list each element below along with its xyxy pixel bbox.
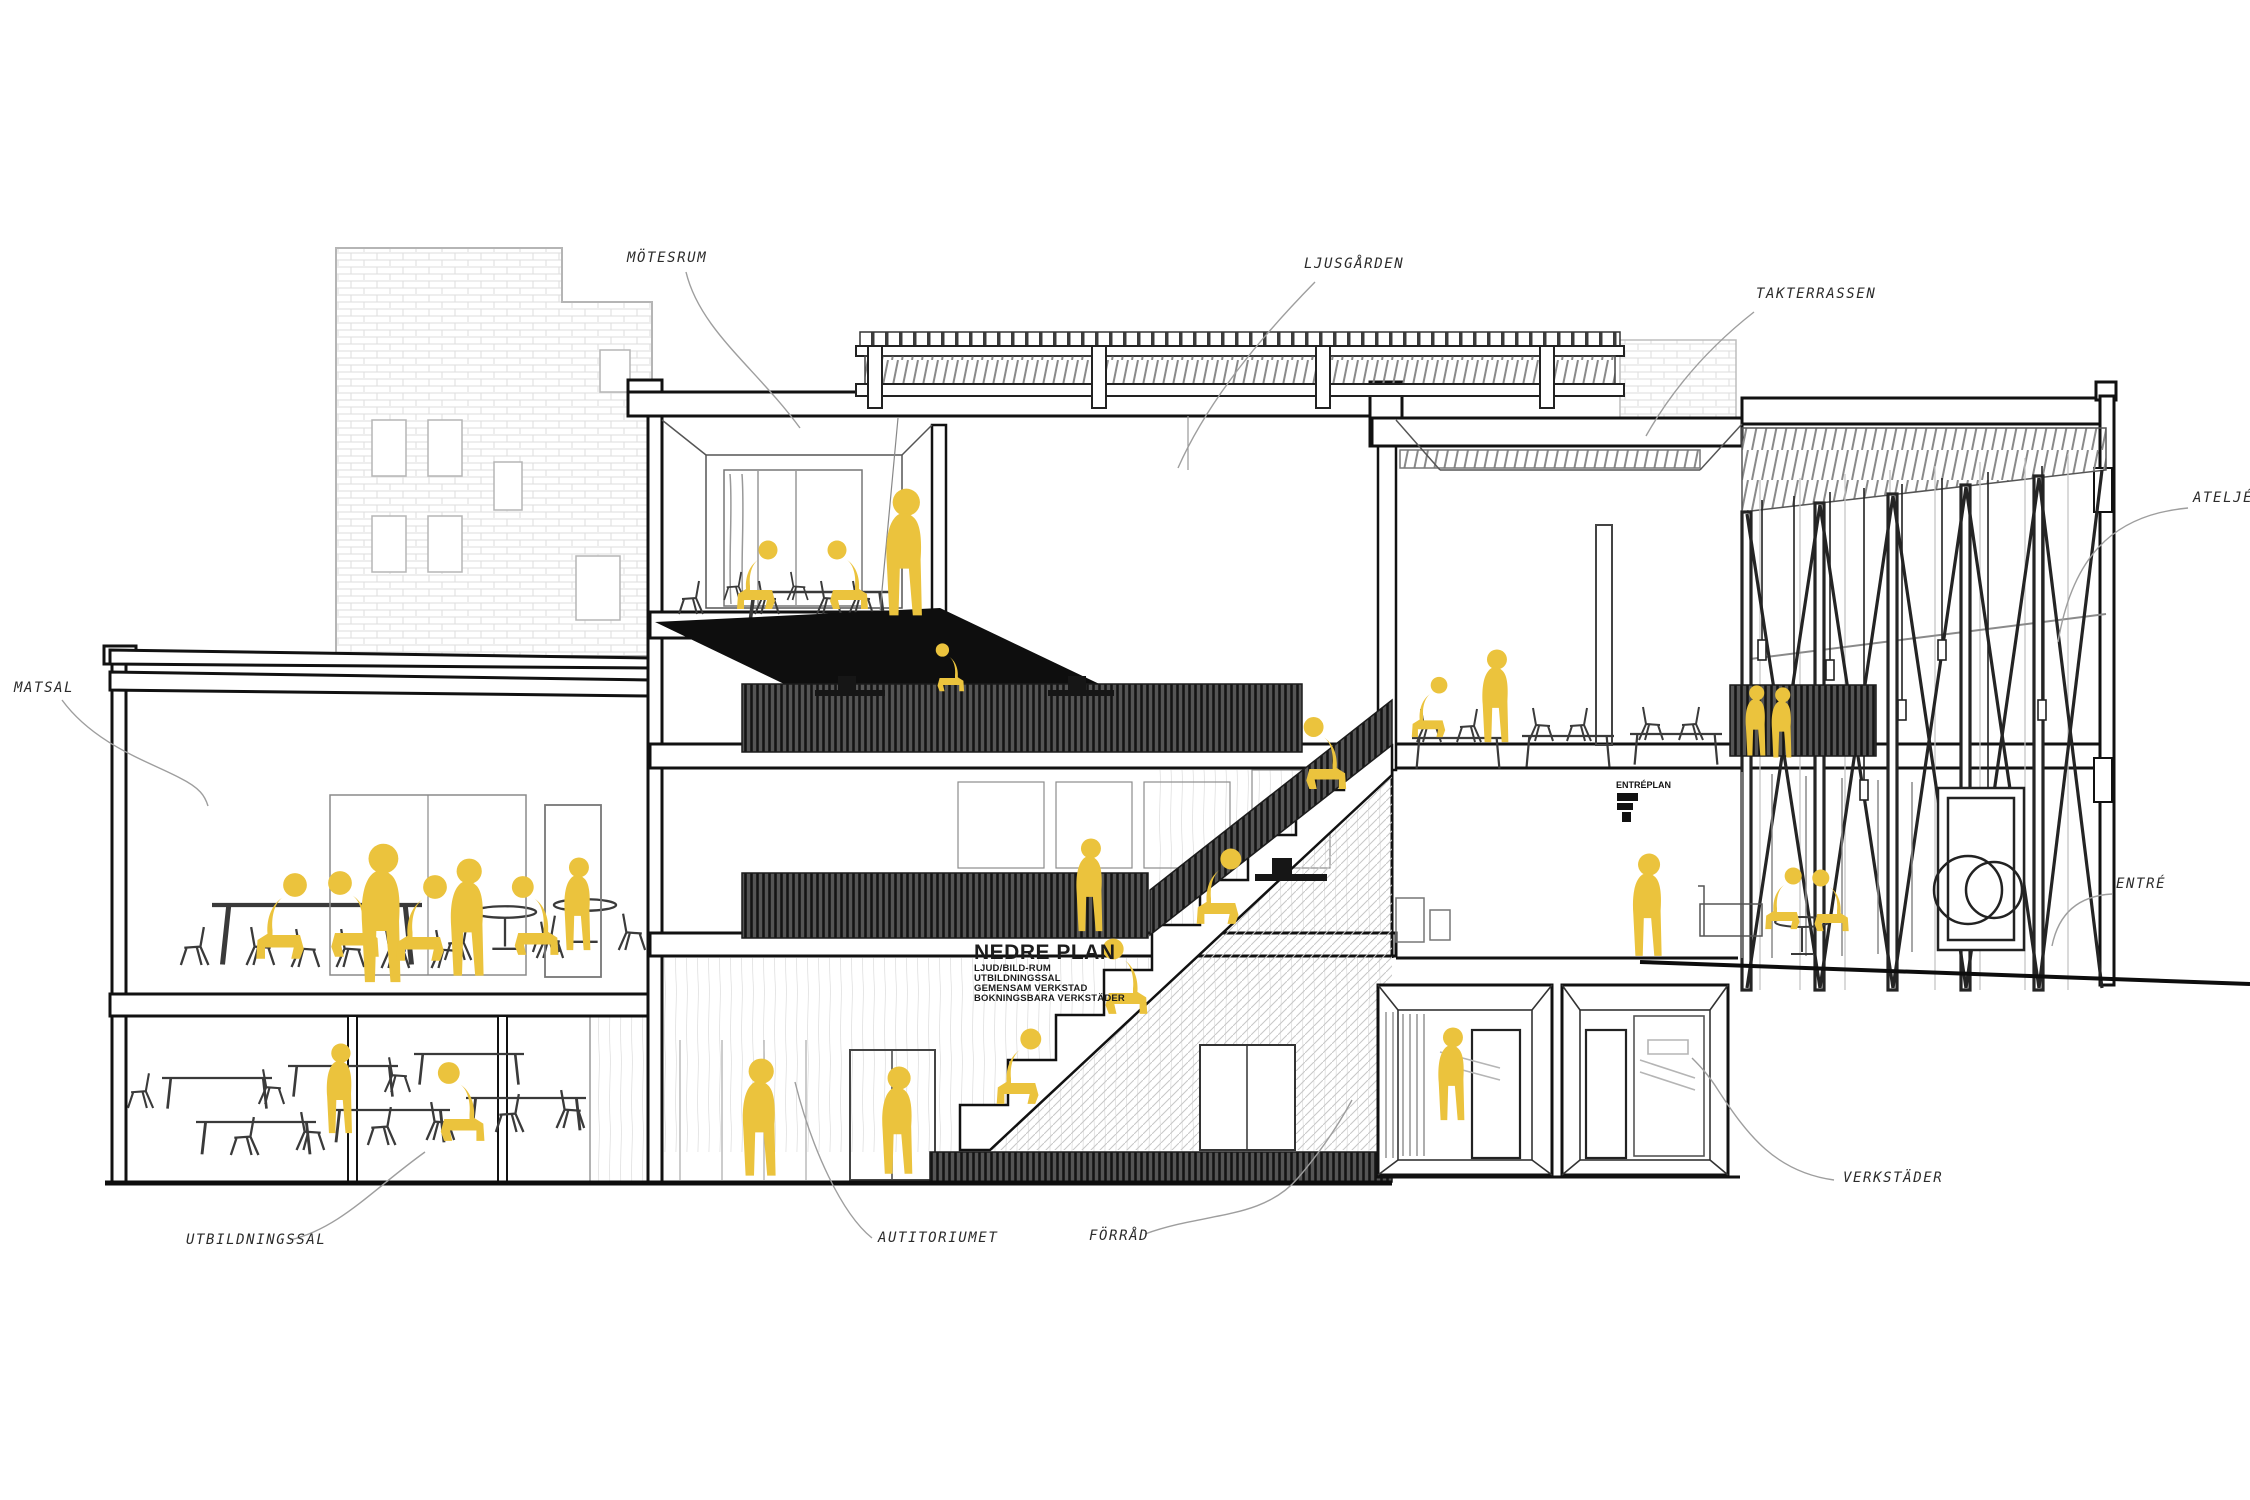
roof-pergola xyxy=(856,332,1624,408)
section-drawing-canvas: ENTRÉPLAN xyxy=(0,0,2250,1500)
building-section-drawing: ENTRÉPLAN xyxy=(0,0,2250,1500)
label-autitoriumet: AUTITORIUMET xyxy=(878,1230,998,1246)
verkstader-rooms xyxy=(1376,985,1740,1177)
label-matsal: MATSAL xyxy=(14,680,74,696)
floor-plan-note: NEDRE PLAN LJUD/BILD-RUM UTBILDNINGSSAL … xyxy=(974,942,1125,1004)
label-forrad: FÖRRÅD xyxy=(1089,1228,1149,1244)
wall-sign-text: ENTRÉPLAN xyxy=(1616,780,1671,790)
label-verkstader: VERKSTÄDER xyxy=(1843,1170,1943,1186)
label-takterrassen: TAKTERRASSEN xyxy=(1756,286,1876,302)
entreplan-wall-sign: ENTRÉPLAN xyxy=(1616,780,1671,822)
takterrass-room xyxy=(1396,420,1742,745)
label-entre: ENTRÉ xyxy=(2116,876,2166,892)
label-motesrum: MÖTESRUM xyxy=(627,250,707,266)
floor-plan-note-line: BOKNINGSBARA VERKSTÄDER xyxy=(974,994,1125,1004)
label-atelje: ATELJÉ xyxy=(2193,490,2250,506)
entre-hall xyxy=(1396,772,2024,958)
floor-plan-note-title: NEDRE PLAN xyxy=(974,942,1125,964)
label-ljusgarden: LJUSGÅRDEN xyxy=(1304,256,1404,272)
label-utbildningssal: UTBILDNINGSSAL xyxy=(186,1232,326,1248)
